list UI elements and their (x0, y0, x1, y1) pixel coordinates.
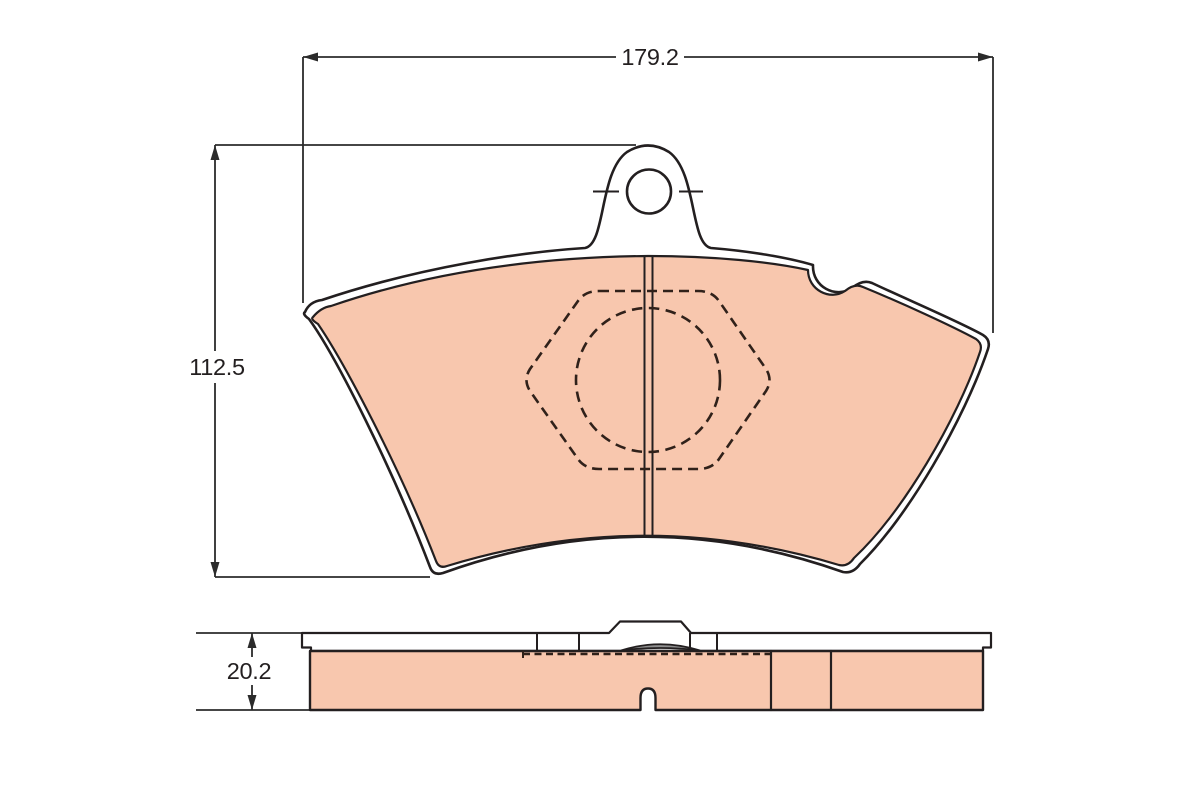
dimension-height-label: 112.5 (189, 354, 245, 380)
arrow-down-icon (211, 562, 220, 577)
arrow-down-icon (248, 695, 257, 710)
front-view (304, 146, 989, 574)
side-view (302, 622, 991, 711)
technical-drawing-canvas: 179.2 112.5 20.2 (0, 0, 1200, 800)
mounting-hole (627, 170, 671, 214)
dimension-width-label: 179.2 (621, 44, 678, 70)
dimension-thickness: 20.2 (196, 633, 312, 710)
brake-pad-technical-drawing: 179.2 112.5 20.2 (0, 0, 1200, 800)
arrow-up-icon (211, 145, 220, 160)
friction-material-body (310, 651, 983, 710)
arrow-right-icon (978, 53, 993, 62)
arrow-up-icon (248, 633, 257, 648)
dimension-thickness-label: 20.2 (227, 658, 272, 684)
arrow-left-icon (303, 53, 318, 62)
